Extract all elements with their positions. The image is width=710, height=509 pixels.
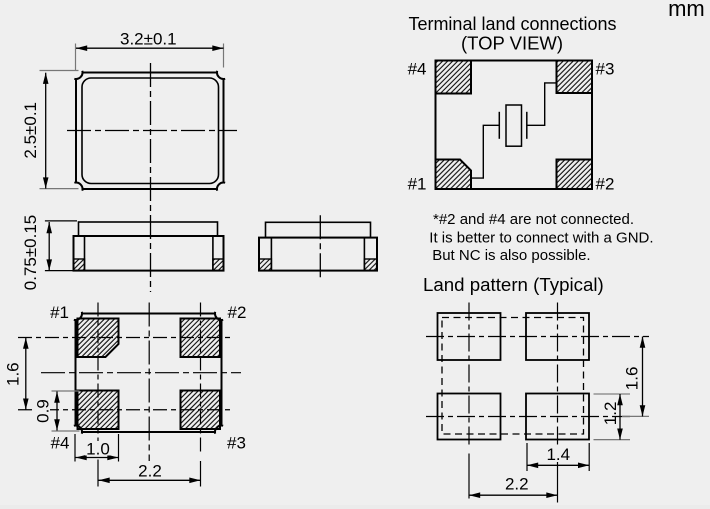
- svg-text:1.6: 1.6: [3, 362, 22, 386]
- svg-text:2.2: 2.2: [138, 462, 162, 481]
- svg-text:Land pattern (Typical): Land pattern (Typical): [423, 274, 604, 295]
- svg-text:*#2 and #4 are not connected.: *#2 and #4 are not connected.: [433, 211, 634, 228]
- svg-text:It is better to connect with a: It is better to connect with a GND.: [429, 230, 653, 247]
- svg-text:0.9: 0.9: [34, 399, 53, 423]
- svg-text:#3: #3: [227, 434, 246, 453]
- svg-text:mm: mm: [668, 0, 705, 21]
- svg-text:2.2: 2.2: [505, 475, 529, 494]
- svg-text:1.4: 1.4: [546, 445, 570, 464]
- svg-text:1.2: 1.2: [601, 402, 620, 426]
- svg-text:#2: #2: [228, 303, 247, 322]
- svg-text:But NC is also possible.: But NC is also possible.: [432, 247, 590, 264]
- svg-text:#4: #4: [51, 434, 70, 453]
- svg-text:Terminal land connections: Terminal land connections: [408, 14, 616, 34]
- svg-text:2.5±0.1: 2.5±0.1: [21, 102, 40, 159]
- svg-text:0.75±0.15: 0.75±0.15: [21, 215, 40, 291]
- svg-text:(TOP VIEW): (TOP VIEW): [461, 32, 563, 53]
- svg-text:#1: #1: [408, 175, 427, 194]
- svg-text:#4: #4: [408, 60, 427, 79]
- svg-text:1.6: 1.6: [623, 367, 642, 391]
- svg-text:#2: #2: [596, 175, 615, 194]
- svg-text:#3: #3: [596, 60, 615, 79]
- svg-text:1.0: 1.0: [86, 440, 110, 459]
- svg-text:3.2±0.1: 3.2±0.1: [120, 30, 177, 49]
- svg-text:#1: #1: [50, 303, 69, 322]
